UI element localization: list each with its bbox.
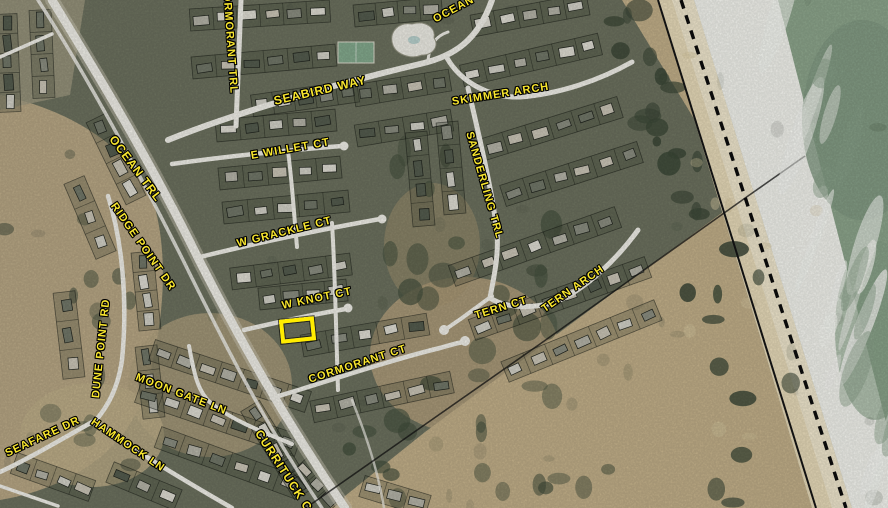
aerial-map-viewport[interactable]: CORMORANT TRLOCEANSEABIRD WAYSKIMMER ARC… [0, 0, 888, 508]
photo-grain [0, 0, 888, 508]
selected-parcel-highlight[interactable] [279, 316, 316, 344]
aerial-imagery [0, 0, 888, 508]
